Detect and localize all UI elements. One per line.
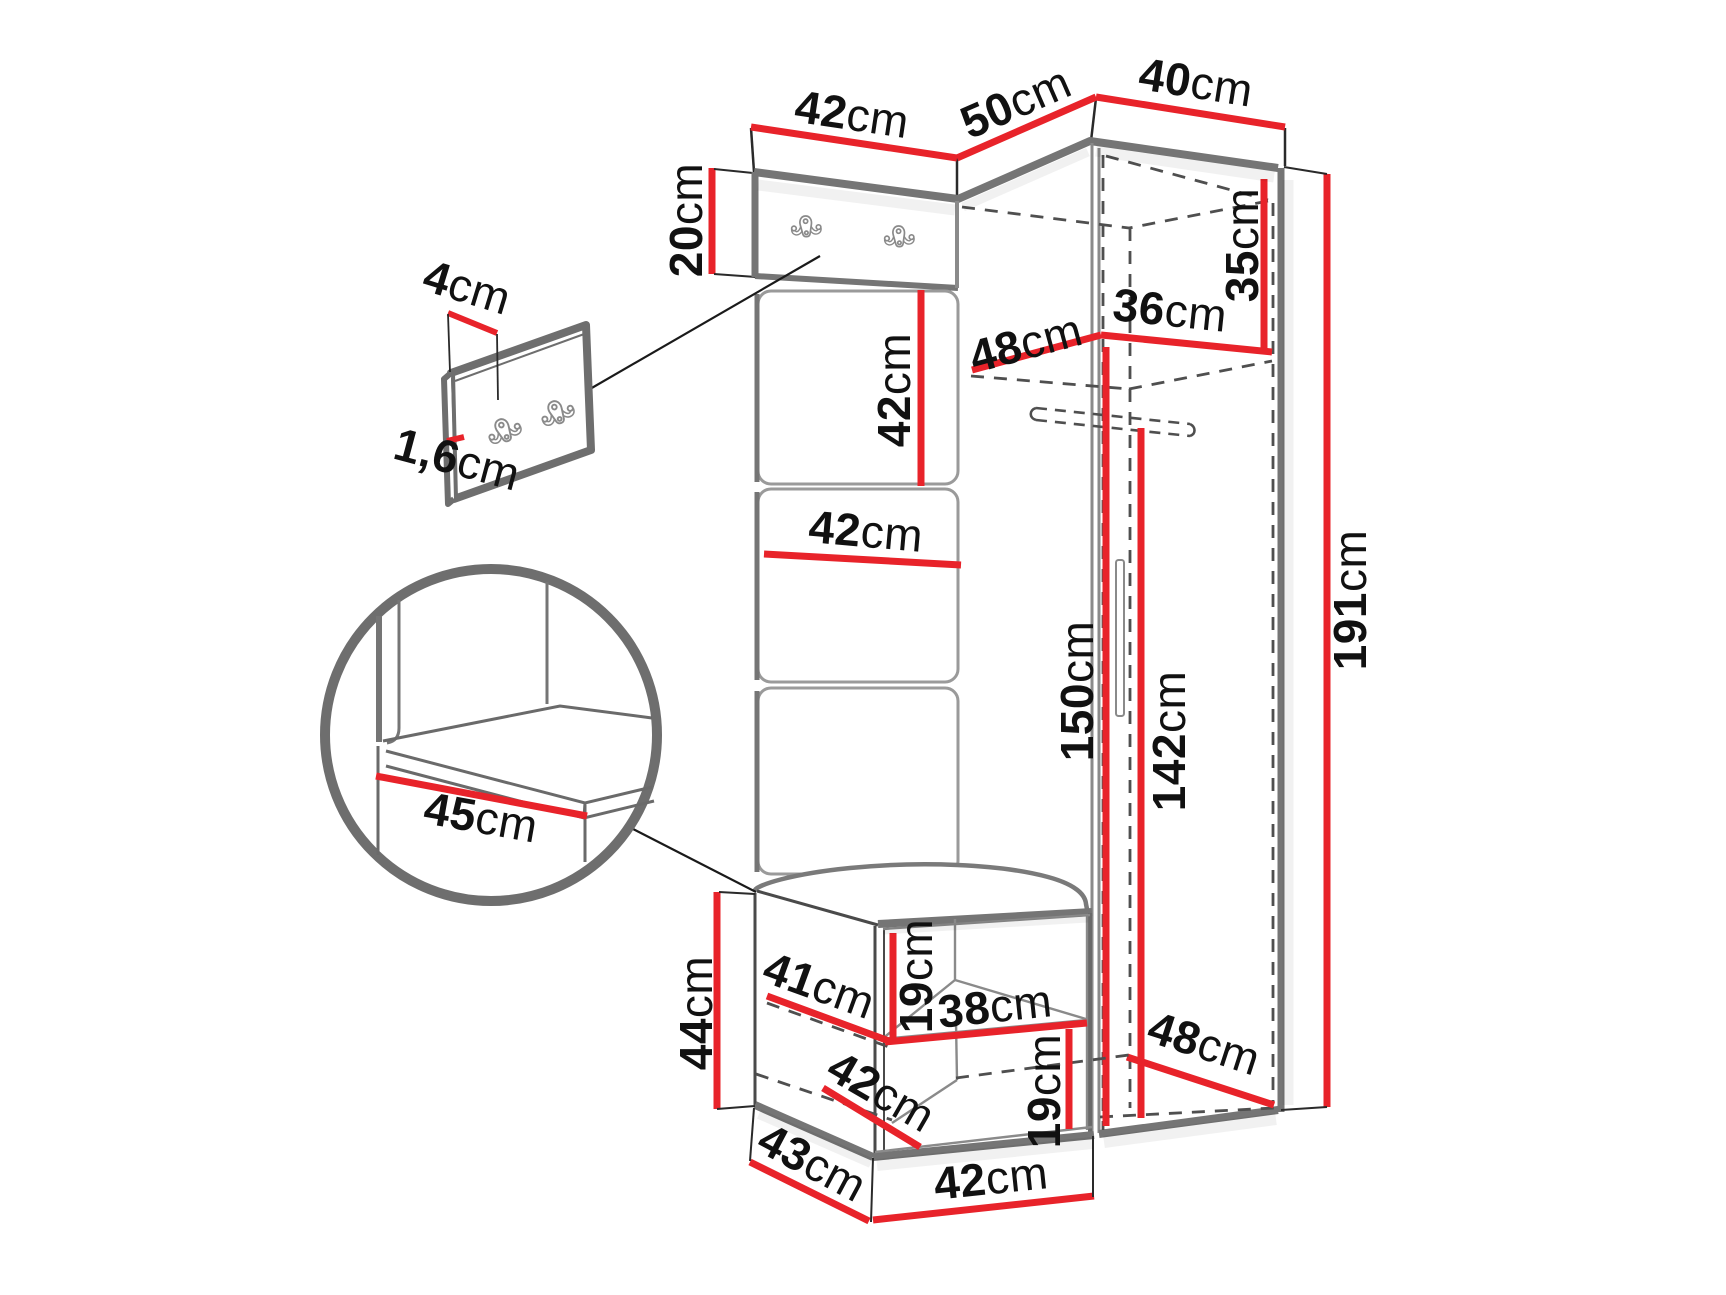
svg-text:42cm: 42cm <box>807 500 926 562</box>
svg-text:150cm: 150cm <box>1051 621 1103 762</box>
svg-text:19cm: 19cm <box>1018 1034 1070 1149</box>
svg-text:42cm: 42cm <box>868 333 920 448</box>
svg-text:44cm: 44cm <box>670 956 722 1071</box>
svg-text:142cm: 142cm <box>1143 671 1195 812</box>
svg-text:191cm: 191cm <box>1324 530 1376 671</box>
svg-text:19cm: 19cm <box>890 919 942 1034</box>
svg-text:20cm: 20cm <box>660 163 712 278</box>
svg-text:35cm: 35cm <box>1216 188 1268 303</box>
